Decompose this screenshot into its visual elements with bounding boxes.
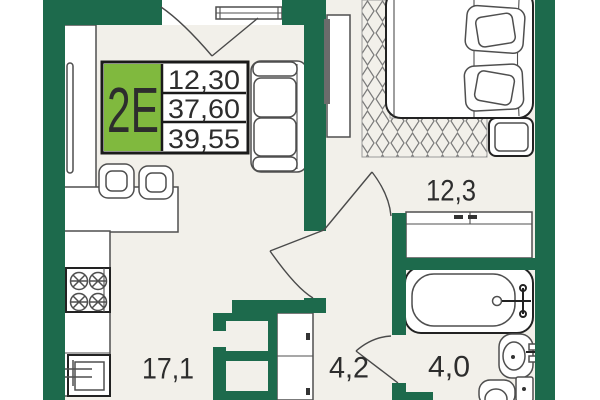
bathtub [405,267,533,333]
wardrobe-body [327,15,350,137]
wall-left [43,0,65,400]
wall-divider-living-bedroom [304,0,326,231]
unit-info-box: 2Е 12,30 37,60 39,55 [102,62,248,154]
stool-1 [99,164,134,198]
toilet-bowl [479,380,515,400]
room-label-bathroom: 4,0 [428,351,470,384]
fridge-door-line [67,63,73,173]
wall-bath-bottom [392,392,433,400]
unit-area-3: 39,55 [168,124,240,154]
wall-top-left [43,0,162,25]
wall-bedroom-bathroom [392,258,535,270]
unit-area-1: 12,30 [168,65,240,95]
closet-handle [306,333,310,340]
faucet-tap [529,356,536,362]
room-label-hallway: 4,2 [329,352,369,385]
pillow-2 [464,64,524,112]
basin-outer [499,334,533,378]
stool-2 [139,166,173,199]
stool-seat [99,164,134,198]
unit-type-label: 2Е [107,74,159,146]
floor-plan-svg: 2Е 12,30 37,60 39,55 17,1 12,3 4,2 4,0 [0,0,600,400]
room-label-bedroom: 12,3 [426,175,476,208]
window-and-balcony-opening [162,0,282,25]
shaft-hole [226,361,268,391]
toilet [479,377,533,400]
shaft-notch [213,331,227,347]
bedroom-wardrobe [324,15,350,137]
wardrobe-sliding-door [324,19,330,104]
dresser-handle [454,215,463,219]
toilet-button [522,387,526,391]
dresser-handle [468,215,477,219]
stove [66,268,110,312]
nightstand [489,118,533,156]
pillow-inner [475,12,516,47]
kitchen-tall-cabinet [64,25,96,197]
floor-plan: 2Е 12,30 37,60 39,55 17,1 12,3 4,2 4,0 [0,0,600,400]
pillow-inner [474,70,516,106]
dresser [406,212,532,258]
pillow-1 [465,5,526,54]
stool-seat [139,166,173,199]
bathtub-drain [493,297,502,306]
basin-drain [511,355,515,359]
shaft-hole [226,321,268,351]
unit-area-2: 37,60 [168,94,240,124]
wall-hall-bar [232,300,326,313]
wall-bath-left [392,213,406,335]
bed [386,0,533,118]
closet-handle [306,388,310,395]
faucet-tap [529,344,536,350]
wall-right [535,0,555,400]
sofa [251,61,307,172]
washbasin [499,334,538,378]
room-label-kitchen-living: 17,1 [142,353,194,386]
hallway-closet [277,313,313,400]
